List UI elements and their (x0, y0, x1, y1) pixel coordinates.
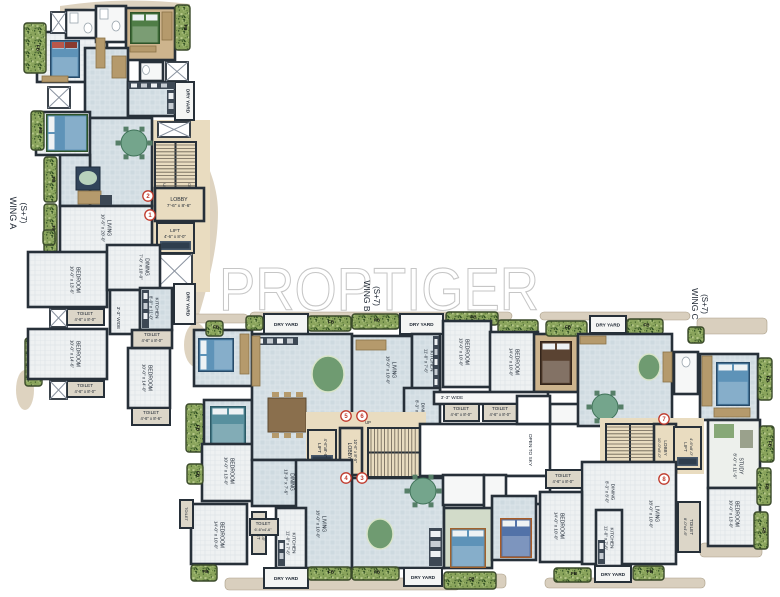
svg-text:TOILET: TOILET (184, 507, 189, 521)
svg-text:FB: FB (328, 320, 335, 325)
svg-text:4'-6"x8'-0": 4'-6"x8'-0" (689, 438, 694, 457)
svg-text:DRY YARD: DRY YARD (601, 572, 626, 578)
svg-text:FB: FB (565, 325, 572, 330)
svg-text:(S+7): (S+7) (700, 294, 709, 314)
svg-text:8'-3" x 8'-0": 8'-3" x 8'-0" (605, 481, 610, 504)
svg-text:11'-0" x 7'-6": 11'-0" x 7'-6" (424, 349, 429, 374)
svg-text:13'-0" x 10'-0": 13'-0" x 10'-0" (459, 338, 464, 367)
svg-text:8'-0"x4'-6": 8'-0"x4'-6" (683, 518, 688, 537)
svg-text:FB: FB (374, 570, 381, 575)
svg-text:8'-0" x 11'-6": 8'-0" x 11'-6" (733, 453, 738, 479)
svg-text:TOILET: TOILET (492, 406, 508, 411)
svg-text:FB: FB (766, 376, 771, 383)
svg-text:(S+7): (S+7) (372, 286, 381, 306)
svg-text:6'-6"x4'-6": 6'-6"x4'-6" (254, 528, 272, 532)
svg-text:TOILET: TOILET (256, 521, 271, 526)
svg-text:WING A: WING A (8, 197, 18, 230)
svg-text:DRY YARD: DRY YARD (274, 576, 299, 582)
svg-text:18'-0" x 10'-0": 18'-0" x 10'-0" (649, 500, 654, 529)
svg-text:10'-0" x 13'-6": 10'-0" x 13'-6" (70, 266, 75, 295)
svg-text:4'-6" x 8'-6": 4'-6" x 8'-6" (140, 416, 162, 421)
svg-text:8'-0" x 11'-0": 8'-0" x 11'-0" (149, 296, 154, 321)
svg-text:4'-6" x 8'-0": 4'-6" x 8'-0" (74, 317, 96, 322)
svg-text:TOILET: TOILET (144, 332, 160, 337)
svg-text:FB: FB (768, 441, 773, 448)
svg-text:TOILET: TOILET (555, 473, 571, 478)
svg-text:FB: FB (36, 45, 41, 52)
svg-text:FB: FB (765, 483, 770, 490)
svg-text:FB: FB (51, 176, 56, 183)
svg-text:LIFT: LIFT (316, 443, 322, 453)
svg-text:TOILET: TOILET (689, 519, 694, 535)
svg-text:WING B: WING B (362, 280, 372, 311)
svg-text:DRY YARD: DRY YARD (185, 292, 191, 317)
svg-text:4'-6"x8'-6": 4'-6"x8'-6" (323, 439, 328, 458)
svg-text:TOILET: TOILET (77, 383, 93, 388)
svg-text:TOILET: TOILET (77, 311, 93, 316)
svg-text:OPEN TO SKY: OPEN TO SKY (527, 434, 533, 467)
svg-text:LOBBY: LOBBY (170, 197, 188, 203)
svg-text:14'-0" x 10'-0": 14'-0" x 10'-0" (554, 512, 559, 541)
svg-text:14'-0" x 10'-0": 14'-0" x 10'-0" (509, 348, 514, 377)
svg-text:UP: UP (365, 420, 371, 425)
svg-text:FB: FB (647, 569, 654, 574)
svg-text:FB: FB (183, 24, 188, 31)
svg-text:7'-6" x 8'-6": 7'-6" x 8'-6" (167, 203, 191, 209)
svg-text:TOILET: TOILET (453, 406, 469, 411)
svg-text:FB: FB (470, 315, 477, 320)
svg-text:10'-0" x 13'-0": 10'-0" x 13'-0" (224, 457, 229, 486)
svg-text:18'-0" x 10'-0": 18'-0" x 10'-0" (386, 356, 391, 385)
svg-text:14'-0" x 10'-0": 14'-0" x 10'-0" (214, 521, 219, 550)
svg-text:DRY YARD: DRY YARD (274, 322, 299, 328)
svg-text:4'-6" x 8'-0": 4'-6" x 8'-0" (74, 389, 96, 394)
svg-text:3'-3" WIDE: 3'-3" WIDE (116, 307, 121, 329)
svg-text:DRY YARD: DRY YARD (409, 322, 434, 328)
svg-text:DRY YARD: DRY YARD (185, 89, 191, 114)
svg-text:7'-0" x 10'-0": 7'-0" x 10'-0" (139, 254, 144, 280)
svg-text:DRY YARD: DRY YARD (411, 575, 436, 581)
svg-text:11'-0" x 7'-6": 11'-0" x 7'-6" (604, 526, 609, 551)
svg-text:FB: FB (38, 127, 43, 134)
svg-text:FB: FB (374, 318, 381, 323)
svg-text:TOILET: TOILET (143, 410, 159, 415)
svg-text:4'-6" x 8'-0": 4'-6" x 8'-0" (141, 338, 163, 343)
svg-text:4'-6" x 8'-0": 4'-6" x 8'-0" (552, 479, 574, 484)
svg-text:4'-6" x 8'-0": 4'-6" x 8'-0" (450, 412, 472, 417)
svg-text:FB: FB (196, 471, 201, 478)
svg-text:11'-0" x 7'-6": 11'-0" x 7'-6" (286, 531, 291, 556)
svg-text:4'-6" x 8'-0": 4'-6" x 8'-0" (489, 412, 511, 417)
svg-text:DRY YARD: DRY YARD (596, 323, 621, 329)
svg-text:(S+7): (S+7) (19, 202, 29, 223)
svg-text:10'-0" x 14'-6": 10'-0" x 14'-6" (70, 340, 75, 369)
svg-text:FB: FB (762, 527, 767, 534)
svg-text:FB: FB (571, 571, 578, 576)
svg-text:LOBBY: LOBBY (346, 443, 352, 460)
svg-text:LIFT: LIFT (683, 442, 688, 452)
svg-text:FB: FB (643, 323, 650, 328)
svg-text:FB: FB (202, 569, 209, 574)
svg-text:10'-6" x 8'-5": 10'-6" x 8'-5" (353, 439, 358, 463)
svg-text:10'-6" x 20'-0": 10'-6" x 20'-0" (101, 214, 106, 243)
svg-text:LOBBY: LOBBY (663, 440, 668, 455)
svg-text:FB: FB (468, 577, 475, 582)
svg-text:13'-9" x 7'-6": 13'-9" x 7'-6" (284, 469, 289, 495)
svg-text:10'-0" x 14'-0": 10'-0" x 14'-0" (142, 364, 147, 393)
svg-text:10'-0" x 13'-0": 10'-0" x 13'-0" (729, 500, 734, 529)
svg-text:18'-0" x 10'-0": 18'-0" x 10'-0" (316, 510, 321, 539)
svg-text:FB: FB (196, 425, 201, 432)
svg-text:10'-0"x5'-0": 10'-0"x5'-0" (657, 438, 662, 459)
svg-text:FB: FB (328, 570, 335, 575)
svg-text:3'-3" WIDE: 3'-3" WIDE (441, 395, 463, 400)
svg-text:WING C: WING C (690, 288, 700, 320)
svg-text:4'-6" x 8'-0": 4'-6" x 8'-0" (164, 234, 187, 239)
svg-text:FB: FB (213, 325, 220, 330)
